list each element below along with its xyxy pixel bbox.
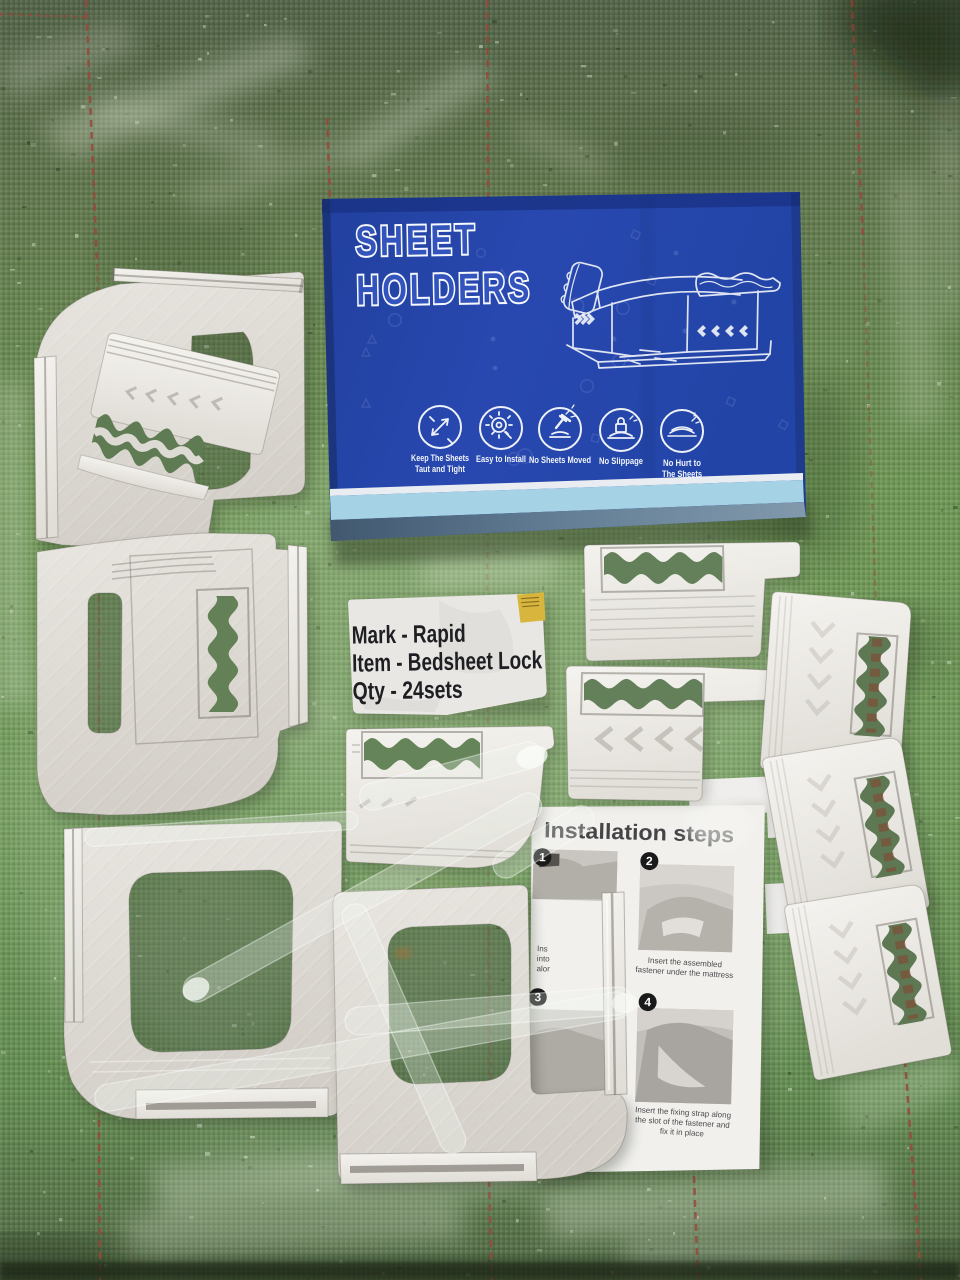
svg-text:Qty - 24sets: Qty - 24sets (352, 676, 462, 706)
svg-text:No Slippage: No Slippage (599, 456, 643, 466)
svg-text:No Hurt to: No Hurt to (663, 458, 701, 468)
svg-text:Item - Bedsheet Lock: Item - Bedsheet Lock (352, 646, 543, 677)
svg-text:SHEET: SHEET (355, 216, 478, 265)
svg-text:HOLDERS: HOLDERS (356, 264, 533, 314)
svg-text:alor: alor (536, 964, 550, 973)
svg-text:Keep The Sheets: Keep The Sheets (411, 453, 469, 463)
svg-text:Ins: Ins (537, 944, 548, 953)
svg-text:4: 4 (644, 995, 651, 1009)
svg-text:2: 2 (646, 854, 653, 868)
svg-text:No Sheets Moved: No Sheets Moved (529, 455, 591, 465)
svg-text:Taut and Tight: Taut and Tight (415, 464, 465, 474)
svg-text:Mark - Rapid: Mark - Rapid (351, 620, 465, 650)
svg-text:into: into (537, 954, 551, 963)
svg-text:Easy to Install: Easy to Install (476, 454, 526, 464)
